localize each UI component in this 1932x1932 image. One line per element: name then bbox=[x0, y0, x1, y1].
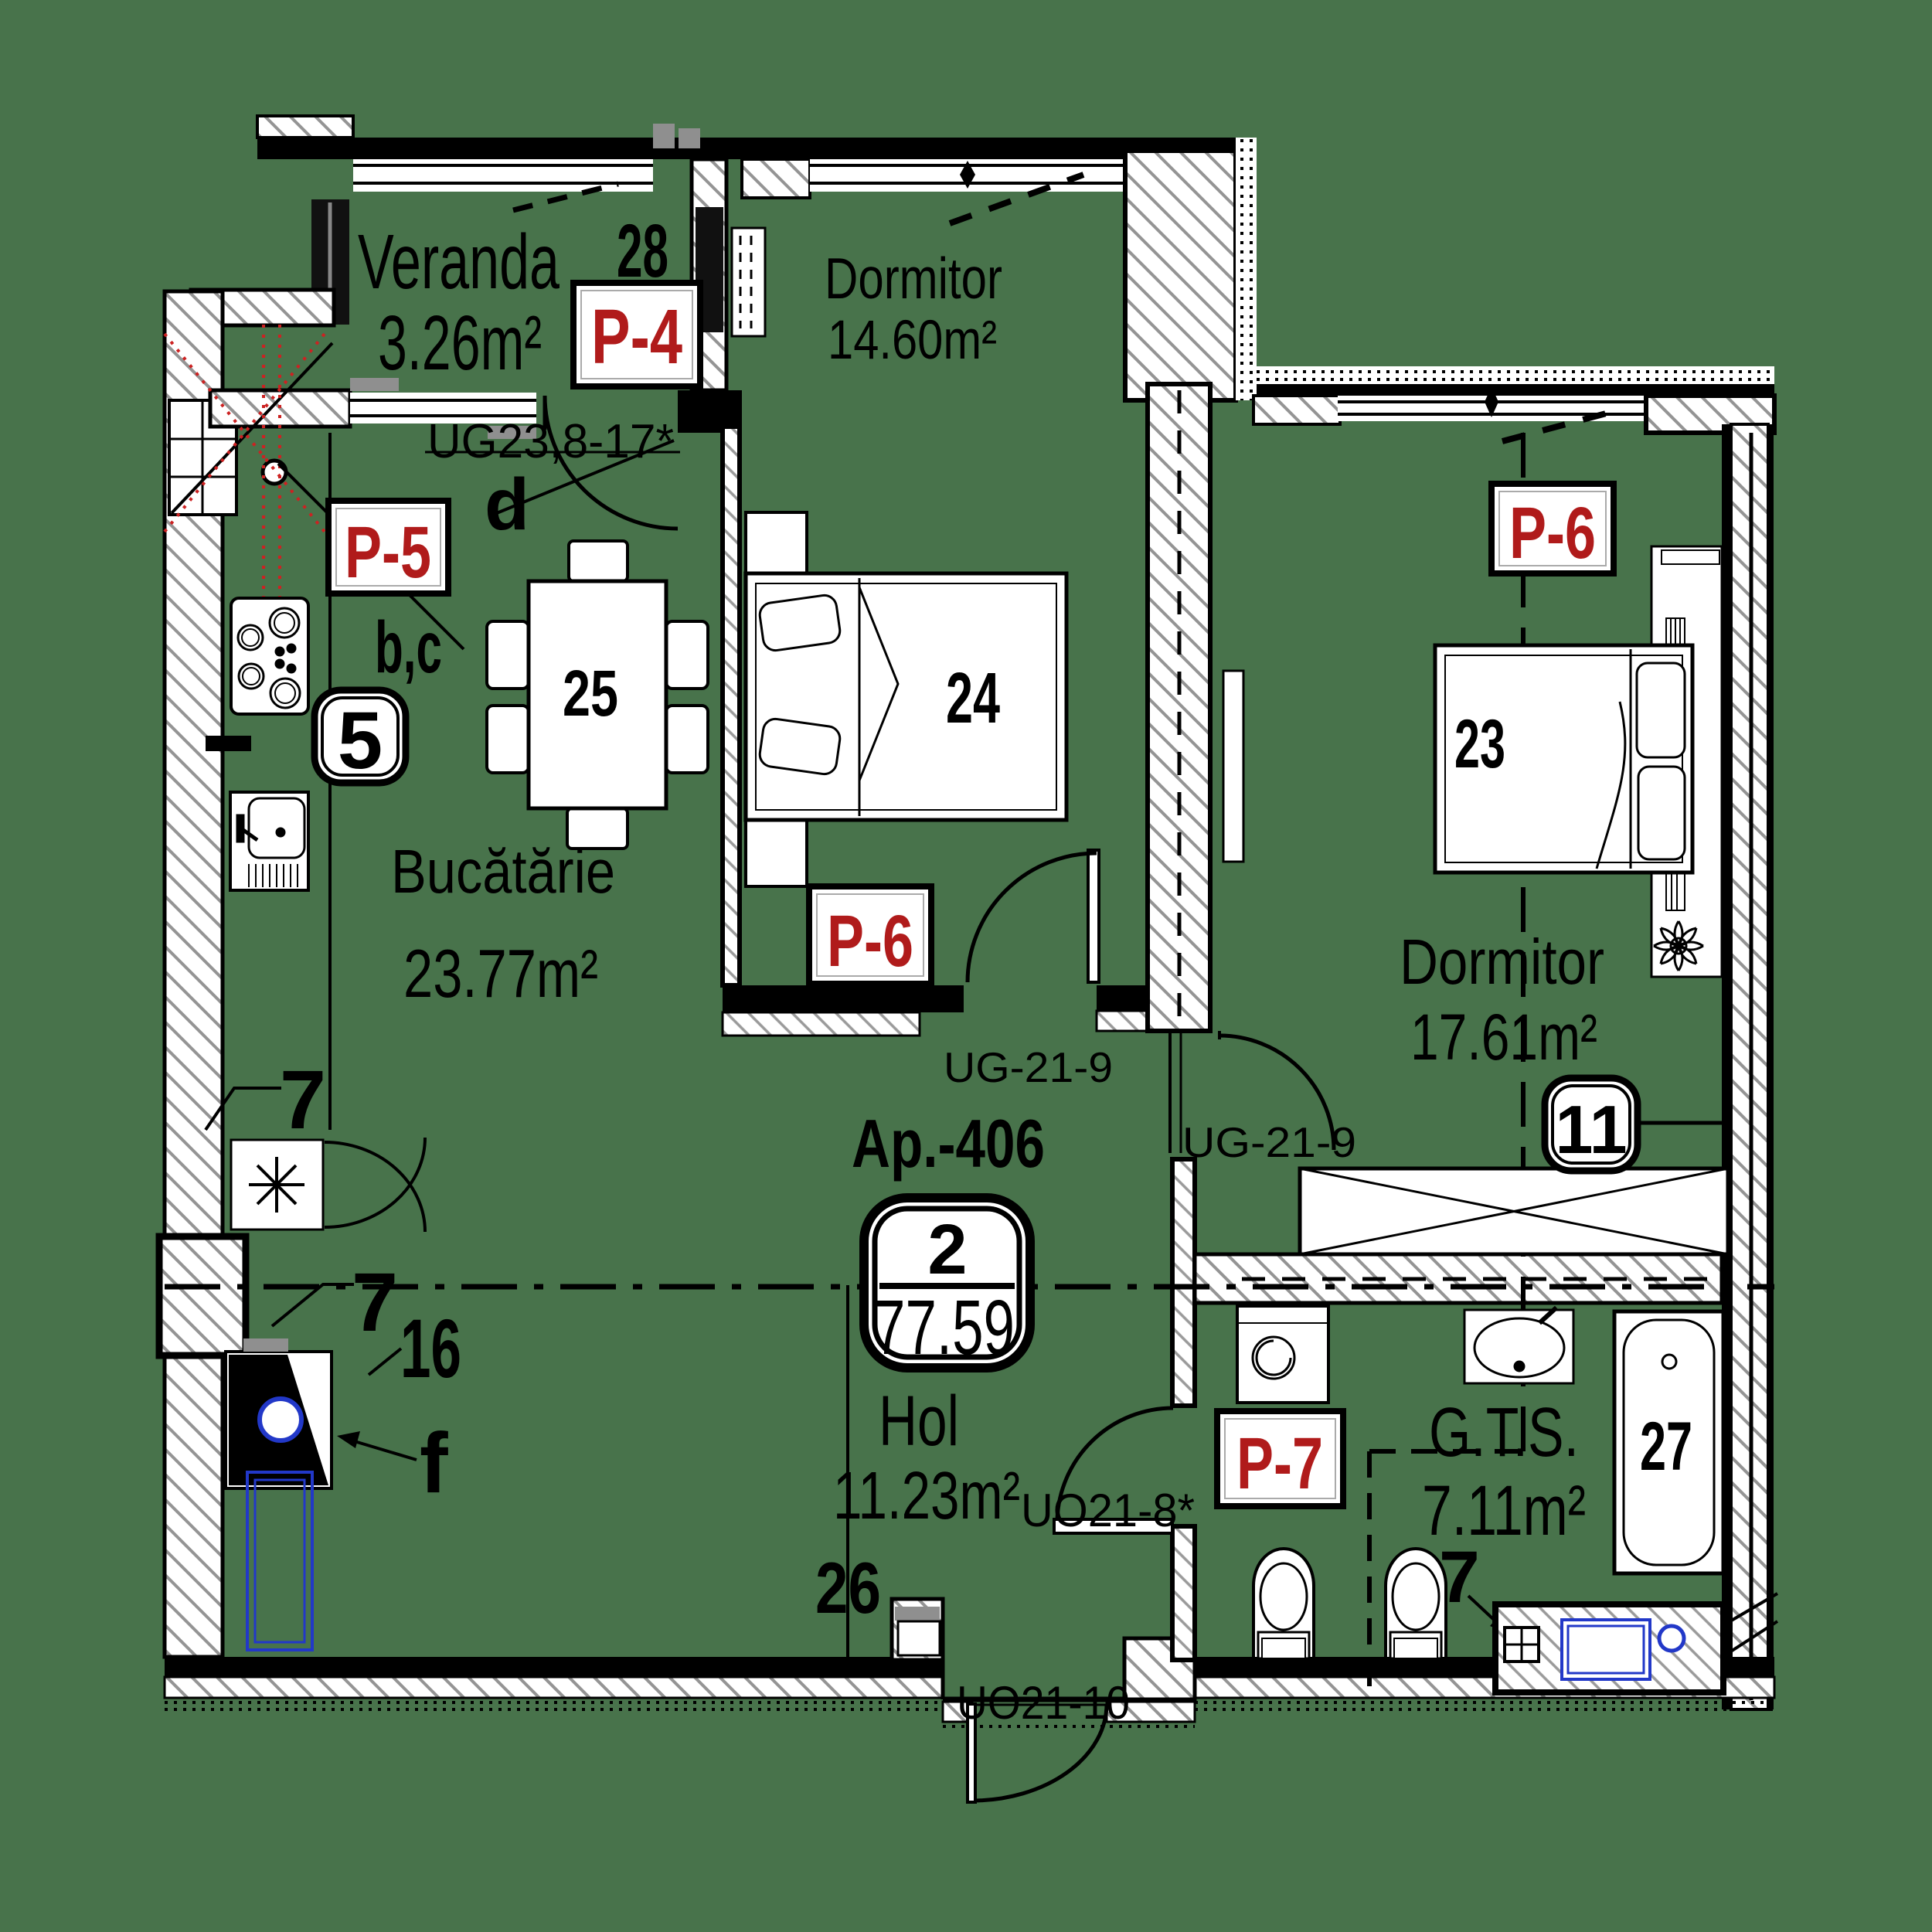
svg-text:27: 27 bbox=[1640, 1407, 1692, 1485]
svg-text:7: 7 bbox=[352, 1255, 398, 1349]
svg-text:P-6: P-6 bbox=[827, 900, 913, 982]
svg-text:f: f bbox=[420, 1416, 448, 1511]
svg-text:Bucătărie: Bucătărie bbox=[391, 837, 615, 906]
svg-text:UG-21-9: UG-21-9 bbox=[1182, 1118, 1356, 1166]
svg-text:7: 7 bbox=[1439, 1536, 1480, 1618]
svg-text:2: 2 bbox=[927, 1210, 967, 1289]
svg-text:23: 23 bbox=[1454, 705, 1505, 782]
svg-text:11: 11 bbox=[1555, 1091, 1627, 1168]
svg-text:UG23,8-17*: UG23,8-17* bbox=[427, 415, 674, 468]
svg-text:25: 25 bbox=[563, 657, 618, 730]
svg-text:7: 7 bbox=[280, 1053, 326, 1146]
svg-text:P-7: P-7 bbox=[1236, 1423, 1323, 1505]
svg-text:26: 26 bbox=[815, 1547, 881, 1628]
svg-text:Ap.-406: Ap.-406 bbox=[852, 1105, 1045, 1182]
svg-text:UO21-8*: UO21-8* bbox=[1021, 1485, 1195, 1536]
svg-text:14.60m²: 14.60m² bbox=[828, 310, 997, 371]
svg-text:3.26m²: 3.26m² bbox=[378, 300, 542, 386]
svg-text:Dormitor: Dormitor bbox=[1400, 926, 1604, 998]
svg-text:UG-21-9: UG-21-9 bbox=[944, 1043, 1113, 1091]
svg-text:Dormitor: Dormitor bbox=[825, 246, 1002, 311]
svg-text:UO21-10: UO21-10 bbox=[957, 1677, 1130, 1729]
svg-text:d: d bbox=[485, 464, 529, 546]
svg-text:77.59: 77.59 bbox=[874, 1284, 1015, 1371]
svg-text:28: 28 bbox=[617, 209, 668, 293]
svg-text:Veranda: Veranda bbox=[358, 219, 560, 305]
svg-text:P-6: P-6 bbox=[1509, 492, 1596, 574]
svg-text:Hol: Hol bbox=[879, 1382, 959, 1461]
svg-text:P-5: P-5 bbox=[345, 512, 431, 594]
svg-text:17.61m²: 17.61m² bbox=[1410, 1001, 1597, 1073]
svg-text:P-4: P-4 bbox=[591, 294, 682, 380]
svg-text:24: 24 bbox=[946, 658, 1000, 738]
svg-text:G.T.S.: G.T.S. bbox=[1429, 1394, 1579, 1471]
svg-text:5: 5 bbox=[338, 696, 383, 786]
svg-text:11.23m²: 11.23m² bbox=[833, 1458, 1020, 1533]
svg-text:16: 16 bbox=[400, 1301, 461, 1395]
svg-text:23.77m²: 23.77m² bbox=[403, 935, 598, 1012]
svg-text:b,c: b,c bbox=[375, 607, 442, 689]
